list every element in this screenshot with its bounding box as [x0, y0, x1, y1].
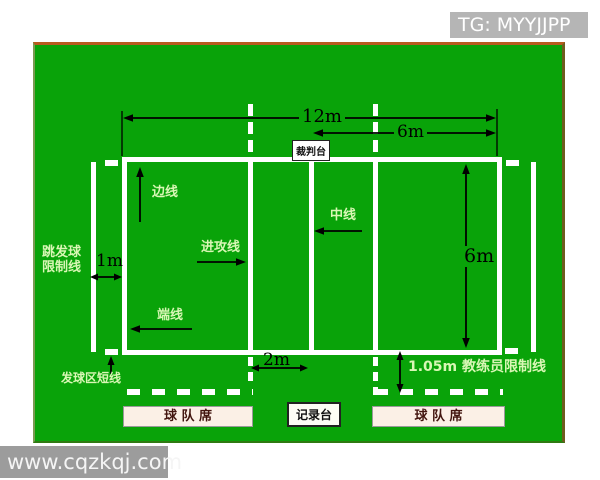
label-jump-serve-limit-line1: 跳发球 [42, 246, 81, 261]
site-watermark: www.cqzkqj.com [0, 446, 168, 478]
label-serve-zone-short-line: 发球区短线 [61, 372, 121, 386]
attack-line-extension-bottom-left [248, 357, 253, 383]
court-diagram: 12m 6m 6m 1m 2m 边线 进攻线 中线 端线 跳发球 限制线 发球区… [0, 0, 600, 480]
serve-zone-short-mark-bottom-left [105, 349, 118, 355]
coach-limit-dashed-line-right [375, 389, 503, 395]
serve-zone-short-mark-bottom-right [505, 348, 518, 354]
dimension-2m: 2m [263, 352, 290, 369]
attack-line-extension-top-left [248, 104, 253, 158]
label-jump-serve-limit-line2: 限制线 [42, 261, 81, 276]
team-bench-right-box: 球 队 席 [372, 406, 505, 427]
attack-line-right [373, 157, 378, 355]
center-line [309, 157, 314, 355]
label-end-line: 端线 [157, 309, 183, 324]
serve-zone-short-mark-top-left [105, 160, 118, 166]
jump-serve-limit-line-right [531, 162, 536, 352]
label-sideline: 边线 [152, 186, 178, 201]
recorder-table-box: 记录台 [287, 402, 341, 427]
dimension-6m-half: 6m [394, 123, 427, 142]
referee-stand-box: 裁判台 [292, 140, 330, 161]
attack-line-left [248, 157, 253, 355]
dimension-6m-width: 6m [461, 246, 497, 267]
dimension-1m: 1m [96, 253, 123, 270]
label-center-line: 中线 [330, 209, 356, 224]
team-bench-left-box: 球 队 席 [123, 406, 253, 427]
coach-limit-dashed-line-left [127, 389, 253, 395]
attack-line-extension-top-right [373, 104, 378, 158]
dimension-12m: 12m [299, 107, 345, 127]
end-line-right [497, 157, 502, 355]
label-attack-line: 进攻线 [201, 241, 240, 256]
label-coach-limit-line: 1.05m 教练员限制线 [408, 359, 546, 375]
serve-zone-short-mark-top-right [506, 160, 519, 166]
tg-contact-badge: TG: MYYJJPP [450, 12, 588, 38]
